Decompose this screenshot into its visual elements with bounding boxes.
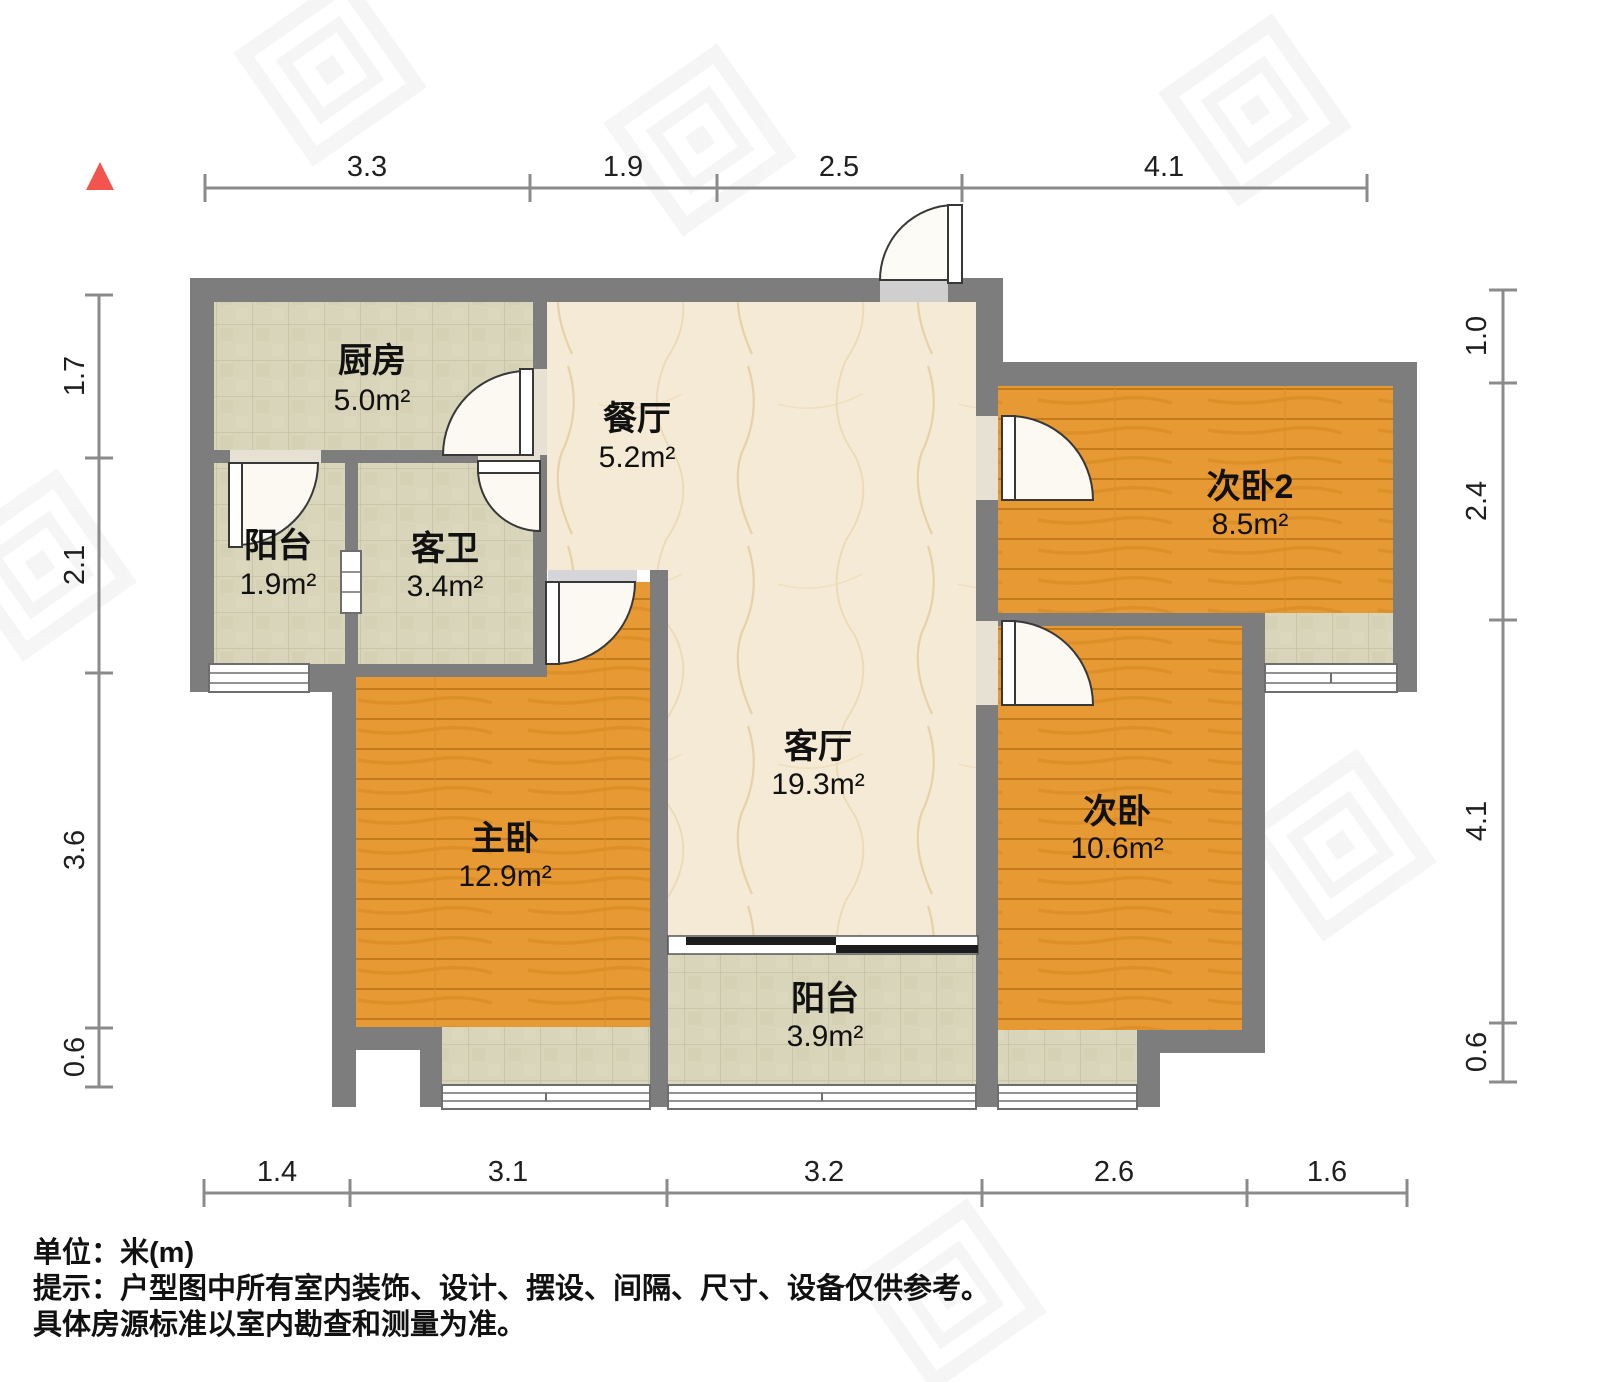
room-area: 19.3m²: [771, 768, 864, 801]
sliding-door-panel: [836, 945, 978, 953]
wall-segment: [332, 664, 547, 677]
room-area: 5.0m²: [334, 384, 411, 417]
tip-note-line2: 具体房源标准以室内勘查和测量为准。: [33, 1307, 526, 1341]
room-area: 3.4m²: [407, 570, 484, 603]
wall-segment: [650, 570, 668, 1107]
room-area: 5.2m²: [599, 441, 676, 474]
watermark: [244, 0, 417, 156]
dim-label: 0.6: [59, 1037, 91, 1077]
room-name: 客卫: [411, 529, 479, 568]
window-alcove: [1265, 664, 1397, 692]
dim-label: 3.6: [59, 830, 91, 870]
wall-segment: [345, 463, 358, 551]
dim-label: 4.1: [1461, 801, 1493, 841]
watermark: [1254, 759, 1427, 932]
red-marker: [86, 162, 114, 190]
watermark: [1169, 24, 1342, 197]
bay-under-bedroom2-floor: [998, 1030, 1137, 1085]
wall-segment: [345, 613, 358, 664]
dim-label: 2.4: [1461, 481, 1493, 521]
threshold: [976, 416, 998, 500]
footer-notes: 单位：米(m) 提示：户型图中所有室内装饰、设计、摆设、间隔、尺寸、设备仅供参考…: [33, 1235, 990, 1341]
wall-segment: [1393, 362, 1417, 692]
sliding-door-panel: [686, 937, 836, 945]
door-leaf: [229, 463, 242, 547]
window-bath-vent: [341, 551, 361, 613]
room-area: 10.6m²: [1070, 832, 1163, 865]
threshold: [548, 570, 637, 582]
room-area: 12.9m²: [458, 860, 551, 893]
door-leaf: [1002, 416, 1015, 500]
sliding-door: [668, 936, 978, 954]
room-name: 次卧2: [1207, 468, 1294, 506]
threshold: [230, 450, 321, 463]
door-leaf: [520, 369, 533, 455]
door-leaf: [546, 582, 559, 664]
wall-segment: [976, 705, 998, 1107]
wall-segment: [976, 500, 998, 621]
floorplan-page: 厨房 5.0m² 餐厅 5.2m² 阳台 1.9m² 客卫 3.4m² 次卧2 …: [0, 0, 1605, 1382]
watermark: [614, 54, 787, 227]
room-name: 厨房: [338, 342, 406, 380]
dim-label: 0.6: [1461, 1032, 1493, 1072]
dim-label: 3.1: [488, 1156, 528, 1188]
dim-label: 1.9: [603, 151, 643, 183]
wall-segment: [420, 1027, 442, 1107]
unit-note: 单位：米(m): [33, 1235, 194, 1269]
dim-label: 1.0: [1461, 316, 1493, 356]
room-name: 餐厅: [603, 400, 671, 438]
threshold: [976, 621, 998, 705]
threshold: [533, 369, 547, 455]
door-leaf: [478, 461, 540, 473]
window-bay-bedroom2: [998, 1085, 1137, 1109]
wall-segment: [190, 278, 880, 302]
dim-label: 3.3: [347, 151, 387, 183]
room-name: 客厅: [784, 727, 852, 766]
entry-door: [880, 205, 962, 283]
wall-segment: [1242, 613, 1265, 1053]
wall-segment: [976, 362, 1417, 386]
window-balcony-center: [668, 1085, 976, 1109]
dimension-right: [1489, 290, 1517, 1082]
wall-segment: [190, 278, 214, 692]
dim-label: 1.6: [1307, 1156, 1347, 1188]
alcove-floor: [1265, 613, 1393, 664]
room-name: 主卧: [471, 820, 539, 858]
dimension-left-labels: 1.7 2.1 3.6 0.6: [59, 356, 91, 1077]
dimension-right-labels: 1.0 2.4 4.1 0.6: [1461, 316, 1493, 1072]
floorplan-canvas: 厨房 5.0m² 餐厅 5.2m² 阳台 1.9m² 客卫 3.4m² 次卧2 …: [0, 0, 1605, 1382]
dim-label: 1.4: [257, 1156, 297, 1188]
dimension-bottom-labels: 1.4 3.1 3.2 2.6 1.6: [257, 1156, 1347, 1188]
room-name: 次卧: [1083, 793, 1151, 831]
dim-label: 3.2: [804, 1156, 844, 1188]
door-leaf: [948, 205, 962, 283]
tip-note-line1: 提示：户型图中所有室内装饰、设计、摆设、间隔、尺寸、设备仅供参考。: [33, 1271, 990, 1305]
wall-segment: [533, 302, 547, 369]
dimension-left: [85, 295, 113, 1087]
dim-label: 2.1: [59, 545, 91, 585]
room-area: 8.5m²: [1212, 508, 1289, 541]
wall-segment: [1137, 1030, 1160, 1107]
room-area: 1.9m²: [240, 568, 317, 601]
room-area: 3.9m²: [787, 1020, 864, 1053]
dim-label: 4.1: [1144, 151, 1184, 183]
bay-under-master-floor: [442, 1027, 650, 1085]
dim-label: 2.5: [819, 151, 859, 183]
room-name: 阳台: [244, 527, 312, 565]
floors: [214, 302, 1393, 1085]
door-leaf: [1002, 621, 1015, 705]
window-balcony-left: [209, 664, 309, 692]
window-bay-master: [442, 1085, 650, 1109]
dim-label: 1.7: [59, 356, 91, 396]
wall-segment: [190, 450, 230, 463]
wall-segment: [309, 664, 332, 692]
wall-segment: [976, 386, 998, 416]
dim-label: 2.6: [1094, 1156, 1134, 1188]
door-swing: [880, 205, 955, 280]
room-name: 阳台: [791, 980, 859, 1018]
entry-threshold: [880, 278, 948, 302]
